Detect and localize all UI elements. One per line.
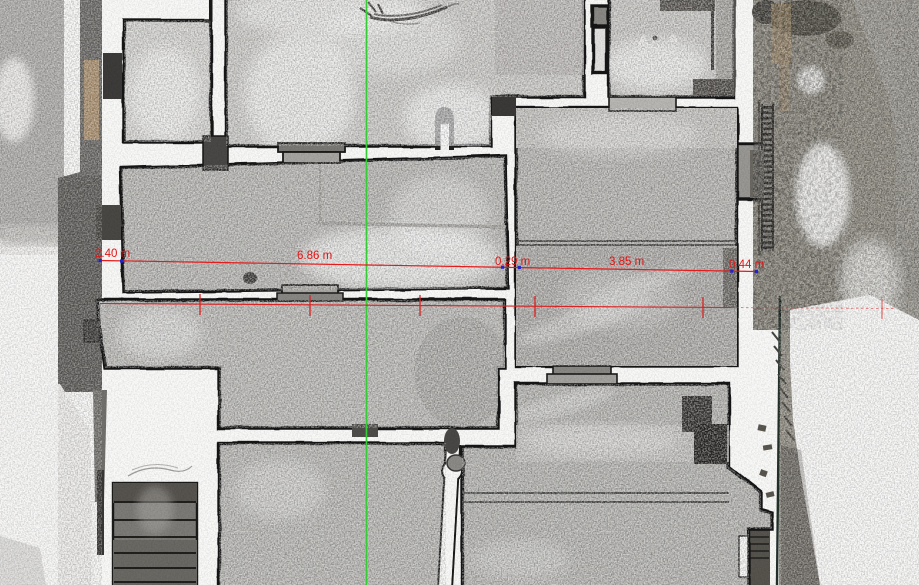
svg-text:2.40 m: 2.40 m (95, 248, 130, 260)
svg-text:0.44 m: 0.44 m (729, 259, 764, 271)
svg-text:0.29 m: 0.29 m (495, 256, 530, 268)
svg-text:3.85 m: 3.85 m (609, 256, 644, 268)
svg-text:6.86 m: 6.86 m (297, 250, 332, 262)
